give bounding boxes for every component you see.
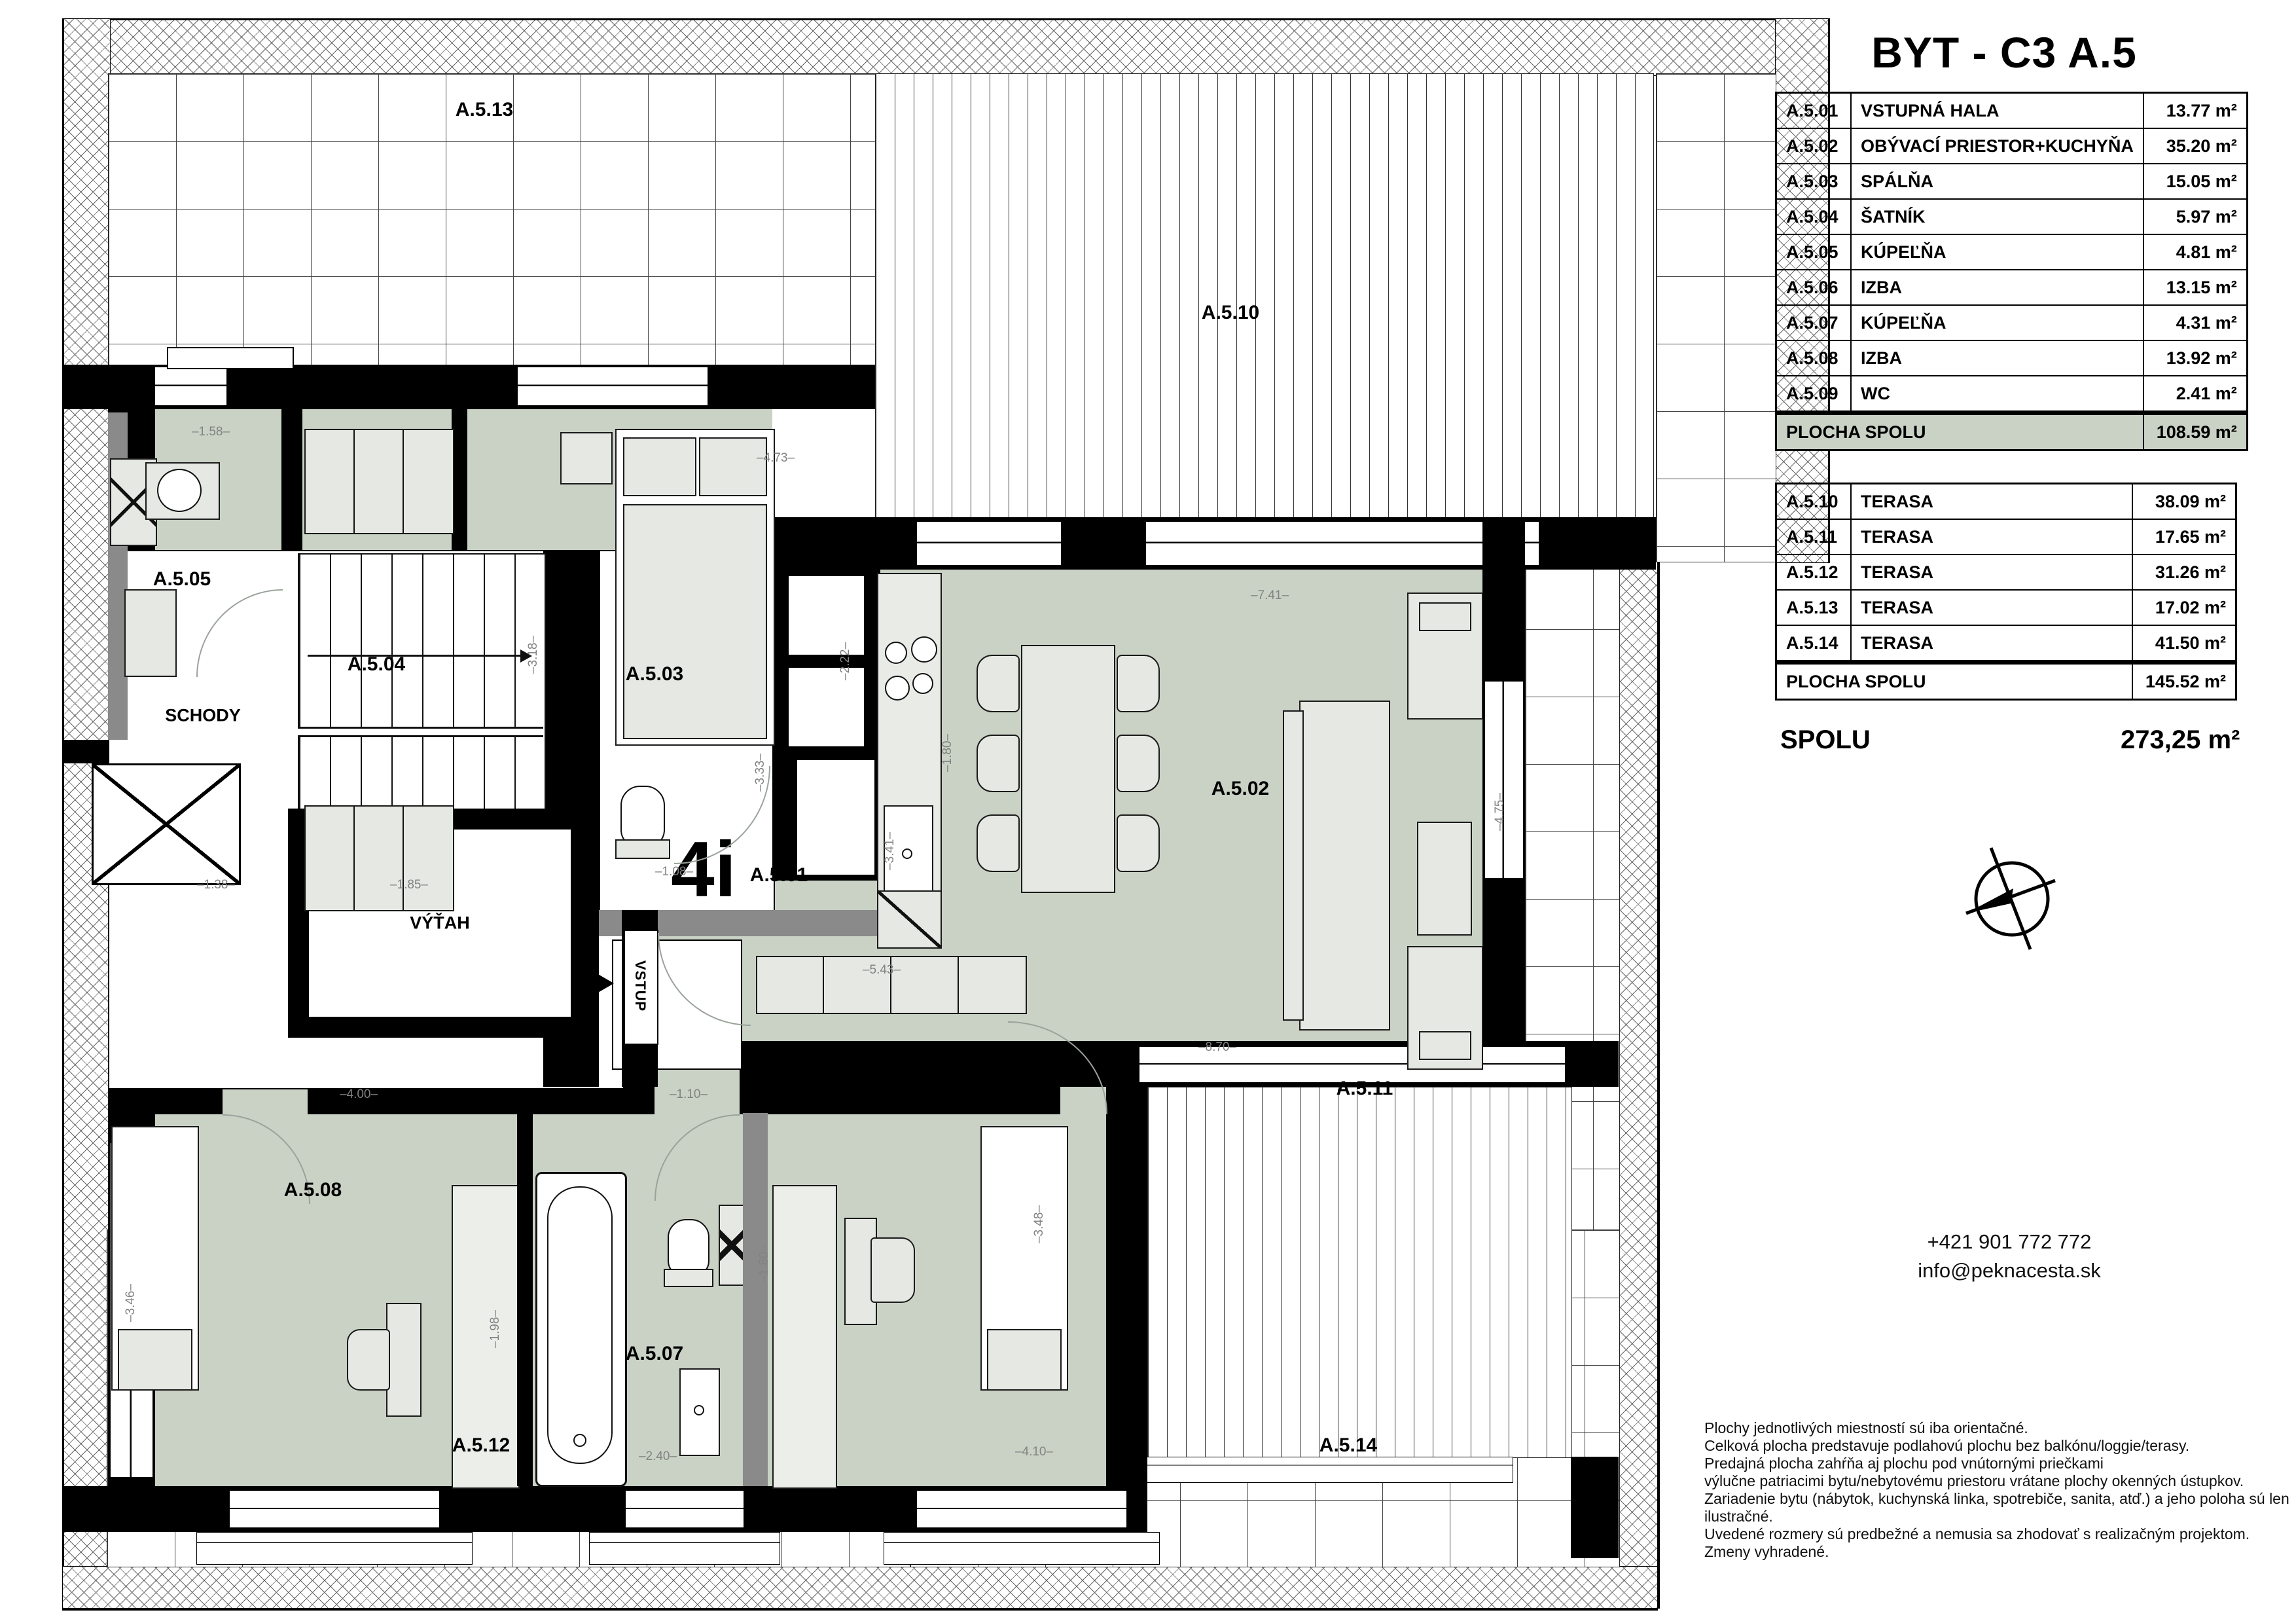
hob-burner-1 — [885, 642, 907, 664]
desk-a508 — [386, 1303, 422, 1417]
shaft-box-3 — [793, 756, 878, 879]
bed-pillow-1 — [623, 437, 696, 496]
dimension-label: –3.41– — [883, 832, 897, 870]
table-row: A.5.01VSTUPNÁ HALA13.77 m² — [1776, 93, 2248, 129]
table-cell: A.5.10 — [1776, 484, 1852, 520]
room-label: A.5.14 — [1319, 1434, 1377, 1457]
sheet-title: BYT - C3 A.5 — [1775, 27, 2233, 77]
armchair-top-cushion — [1419, 602, 1471, 631]
dimension-label: –4.73– — [757, 451, 795, 465]
table-row: A.5.08IZBA13.92 m² — [1776, 340, 2248, 376]
toilet-core-tank — [615, 839, 670, 859]
toilet-core — [620, 786, 665, 847]
table-row: A.5.10TERASA38.09 m² — [1776, 484, 2236, 520]
wall-corner-block — [1571, 1457, 1619, 1558]
chair-6 — [1117, 814, 1160, 872]
dimension-label: –1.80– — [941, 734, 955, 772]
kitchen-corner-unit — [877, 890, 942, 949]
rooms-total-area: 108.59 m² — [2144, 413, 2248, 450]
note-line: Uvedené rozmery sú predbežné a nemusia s… — [1704, 1525, 2296, 1543]
table-cell: 17.02 m² — [2132, 590, 2236, 625]
vent-box — [167, 347, 294, 369]
table-cell: 38.09 m² — [2132, 484, 2236, 520]
bed-blanket — [623, 504, 767, 739]
floor-plan-sheet: SCHODY VÝŤAH VSTUP 4i — [0, 0, 2296, 1623]
table-cell: 35.20 m² — [2144, 128, 2248, 164]
dimension-label: –5.43– — [863, 963, 901, 977]
door-gap-a508 — [223, 1087, 308, 1114]
a504-closet-top — [304, 429, 454, 534]
note-line: Celková plocha predstavuje podlahovú plo… — [1704, 1437, 2296, 1455]
chair-a508 — [347, 1329, 390, 1391]
table-cell: ŠATNÍK — [1851, 199, 2144, 234]
table-cell: OBÝVACÍ PRIESTOR+KUCHYŇA — [1851, 128, 2144, 164]
room-label: A.5.01 — [750, 864, 808, 886]
table-cell: TERASA — [1851, 555, 2132, 590]
rooms-total-label: PLOCHA SPOLU — [1776, 413, 2144, 450]
note-line: výlučne patriacimi bytu/nebytovému pries… — [1704, 1472, 2296, 1490]
chair-5 — [1117, 735, 1160, 792]
note-line: Predajná plocha zahŕňa aj plochu pod vnú… — [1704, 1455, 2296, 1472]
rooms-table: A.5.01VSTUPNÁ HALA13.77 m²A.5.02OBÝVACÍ … — [1775, 92, 2248, 451]
window-bottom-1 — [229, 1490, 440, 1528]
bathtub-inner — [547, 1186, 613, 1464]
table-row: A.5.05KÚPEĽŇA4.81 m² — [1776, 234, 2248, 270]
table-cell: A.5.09 — [1776, 376, 1852, 413]
window-living-top-2 — [1145, 521, 1539, 566]
toilet-a507 — [668, 1219, 709, 1277]
hob-burner-4 — [912, 673, 933, 694]
table-cell: A.5.05 — [1776, 234, 1852, 270]
bed-a508-pillow — [118, 1329, 192, 1391]
armchair-bottom-cushion — [1419, 1031, 1471, 1060]
dimension-label: –8.70– — [1198, 1040, 1236, 1055]
table-cell: A.5.11 — [1776, 519, 1852, 555]
window-living-right — [1484, 681, 1524, 879]
dimension-label: –1.85– — [390, 878, 428, 892]
note-line: Zariadenie bytu (nábytok, kuchynská link… — [1704, 1490, 2296, 1525]
grand-total-label: SPOLU — [1780, 725, 1871, 755]
hatch-border-right-lower — [1619, 561, 1660, 1609]
stairs-landing-line — [298, 727, 543, 737]
window-bottom-2 — [625, 1490, 744, 1528]
terraces-total-area: 145.52 m² — [2132, 663, 2236, 700]
elevator-label: VÝŤAH — [410, 913, 470, 934]
table-cell: SPÁLŇA — [1851, 164, 2144, 199]
sill-bottom-1 — [196, 1532, 473, 1565]
table-cell: 13.15 m² — [2144, 270, 2248, 305]
hob-burner-3 — [885, 676, 910, 701]
storage-triangle — [92, 763, 241, 885]
contact-block: +421 901 772 772 info@peknacesta.sk — [1833, 1228, 2186, 1285]
contact-phone: +421 901 772 772 — [1833, 1228, 2186, 1256]
sill-bottom-3 — [884, 1532, 1160, 1565]
table-row: A.5.11TERASA17.65 m² — [1776, 519, 2236, 555]
dimension-label: –1.08– — [655, 865, 693, 879]
room-label: A.5.03 — [626, 663, 683, 685]
dimension-label: –4.75– — [1493, 793, 1507, 831]
table-cell: A.5.03 — [1776, 164, 1852, 199]
terrace-a510 — [875, 73, 1654, 519]
table-cell: 15.05 m² — [2144, 164, 2248, 199]
sill-a511 — [1145, 1457, 1513, 1483]
wall-a507-a506-gray — [743, 1113, 768, 1486]
contact-email: info@peknacesta.sk — [1833, 1256, 2186, 1285]
dimension-label: –1.58– — [192, 425, 230, 439]
dimension-label: –3.48– — [1032, 1205, 1047, 1243]
table-cell: IZBA — [1851, 340, 2144, 376]
table-cell: A.5.01 — [1776, 93, 1852, 129]
table-cell: 41.50 m² — [2132, 625, 2236, 663]
hob-burner-2 — [911, 636, 937, 663]
compass-icon — [1957, 841, 2072, 956]
terraces-table: A.5.10TERASA38.09 m²A.5.11TERASA17.65 m²… — [1775, 483, 2237, 701]
sofa-back — [1283, 710, 1304, 1021]
bathtub-drain — [573, 1434, 586, 1447]
nightstand-left — [560, 432, 613, 484]
hatch-border-top — [62, 18, 1829, 76]
table-cell: A.5.12 — [1776, 555, 1852, 590]
room-label: A.5.10 — [1202, 302, 1259, 324]
table-cell: A.5.02 — [1776, 128, 1852, 164]
dimension-label: –3.33– — [753, 754, 768, 792]
table-cell: 31.26 m² — [2132, 555, 2236, 590]
table-cell: 2.41 m² — [2144, 376, 2248, 413]
disclaimer-notes: Plochy jednotlivých miestností sú iba or… — [1704, 1419, 2296, 1561]
rooms-total-row: PLOCHA SPOLU 108.59 m² — [1776, 413, 2248, 450]
terraces-total-label: PLOCHA SPOLU — [1776, 663, 2133, 700]
note-line: Zmeny vyhradené. — [1704, 1543, 2296, 1561]
room-label: A.5.11 — [1336, 1078, 1393, 1100]
chair-a506 — [870, 1237, 915, 1303]
note-line: Plochy jednotlivých miestností sú iba or… — [1704, 1419, 2296, 1437]
table-cell: 4.31 m² — [2144, 305, 2248, 340]
dimension-label: –1.10– — [670, 1087, 708, 1102]
chair-2 — [977, 735, 1020, 792]
table-cell: A.5.13 — [1776, 590, 1852, 625]
dining-table — [1021, 645, 1115, 893]
table-cell: A.5.14 — [1776, 625, 1852, 663]
table-cell: 13.77 m² — [2144, 93, 2248, 129]
closet-a506 — [772, 1185, 837, 1489]
table-row: A.5.03SPÁLŇA15.05 m² — [1776, 164, 2248, 199]
dimension-label: –3.46– — [124, 1284, 138, 1322]
table-row: A.5.12TERASA31.26 m² — [1776, 555, 2236, 590]
table-row: A.5.04ŠATNÍK5.97 m² — [1776, 199, 2248, 234]
a505-sink-bowl — [157, 469, 202, 512]
table-cell: 5.97 m² — [2144, 199, 2248, 234]
room-label: A.5.05 — [153, 568, 211, 591]
sill-bottom-2 — [589, 1532, 780, 1565]
a504-closet-bottom — [304, 805, 454, 911]
room-label: A.5.08 — [284, 1179, 342, 1201]
dimension-label: –1.98– — [488, 1310, 503, 1348]
table-row: A.5.14TERASA41.50 m² — [1776, 625, 2236, 663]
window-top-2 — [517, 367, 708, 406]
room-label: A.5.07 — [626, 1343, 683, 1365]
table-row: A.5.13TERASA17.02 m² — [1776, 590, 2236, 625]
terrace-strip-top-right — [1656, 73, 1776, 562]
toilet-a507-tank — [664, 1269, 713, 1287]
dimension-label: –1.38– — [197, 878, 235, 892]
chair-3 — [977, 814, 1020, 872]
window-bottom-3 — [916, 1490, 1127, 1528]
chair-1 — [977, 655, 1020, 712]
bed-a506-pillow — [987, 1329, 1062, 1391]
stairs-arrow-up — [308, 655, 524, 657]
wall-a506-right — [1106, 1087, 1147, 1486]
table-row: A.5.06IZBA13.15 m² — [1776, 270, 2248, 305]
table-cell: A.5.07 — [1776, 305, 1852, 340]
hatch-border-bottom — [62, 1566, 1658, 1611]
table-cell: TERASA — [1851, 519, 2132, 555]
table-cell: TERASA — [1851, 625, 2132, 663]
dimension-label: –3.18– — [526, 636, 541, 674]
table-cell: KÚPEĽŇA — [1851, 305, 2144, 340]
room-label: A.5.06 — [881, 1095, 939, 1118]
dimension-label: –1.80– — [757, 1245, 772, 1283]
table-cell: 13.92 m² — [2144, 340, 2248, 376]
table-row: A.5.09WC2.41 m² — [1776, 376, 2248, 413]
dimension-label: –2.22– — [838, 642, 853, 680]
room-label: A.5.13 — [456, 99, 513, 121]
wall-a507-left — [517, 1113, 533, 1486]
table-cell: 17.65 m² — [2132, 519, 2236, 555]
table-cell: KÚPEĽŇA — [1851, 234, 2144, 270]
table-cell: A.5.06 — [1776, 270, 1852, 305]
table-cell: WC — [1851, 376, 2144, 413]
a505-cabinet — [124, 589, 177, 677]
coffee-table — [1417, 822, 1472, 936]
sink-a507-tap — [694, 1405, 704, 1415]
grand-total-area: 273,25 m² — [2121, 725, 2240, 755]
terrace-a511 — [1147, 1087, 1572, 1458]
entry-arrow-icon — [589, 969, 614, 998]
table-row: A.5.07KÚPEĽŇA4.31 m² — [1776, 305, 2248, 340]
table-cell: A.5.08 — [1776, 340, 1852, 376]
floor-plan: SCHODY VÝŤAH VSTUP 4i — [0, 0, 1833, 1623]
table-cell: A.5.04 — [1776, 199, 1852, 234]
kitchen-sink-tap — [902, 848, 912, 859]
sofa — [1299, 701, 1390, 1030]
chair-4 — [1117, 655, 1160, 712]
dimension-label: –4.00– — [340, 1087, 378, 1102]
table-cell: TERASA — [1851, 590, 2132, 625]
dimension-label: –2.40– — [639, 1450, 677, 1464]
table-row: A.5.02OBÝVACÍ PRIESTOR+KUCHYŇA35.20 m² — [1776, 128, 2248, 164]
table-cell: IZBA — [1851, 270, 2144, 305]
table-cell: VSTUPNÁ HALA — [1851, 93, 2144, 129]
terraces-total-row: PLOCHA SPOLU 145.52 m² — [1776, 663, 2236, 700]
dimension-label: –4.10– — [1015, 1445, 1053, 1459]
room-label: A.5.02 — [1211, 778, 1269, 800]
stairs-label: SCHODY — [165, 706, 241, 726]
room-label: A.5.04 — [348, 653, 405, 676]
room-label: A.5.12 — [452, 1434, 510, 1457]
washer-a507 — [719, 1205, 745, 1286]
table-cell: 4.81 m² — [2144, 234, 2248, 270]
window-living-top-1 — [916, 521, 1062, 566]
dimension-label: –7.41– — [1251, 589, 1289, 603]
table-cell: TERASA — [1851, 484, 2132, 520]
bed-pillow-2 — [699, 437, 767, 496]
entrance-label: VSTUP — [632, 960, 649, 1012]
